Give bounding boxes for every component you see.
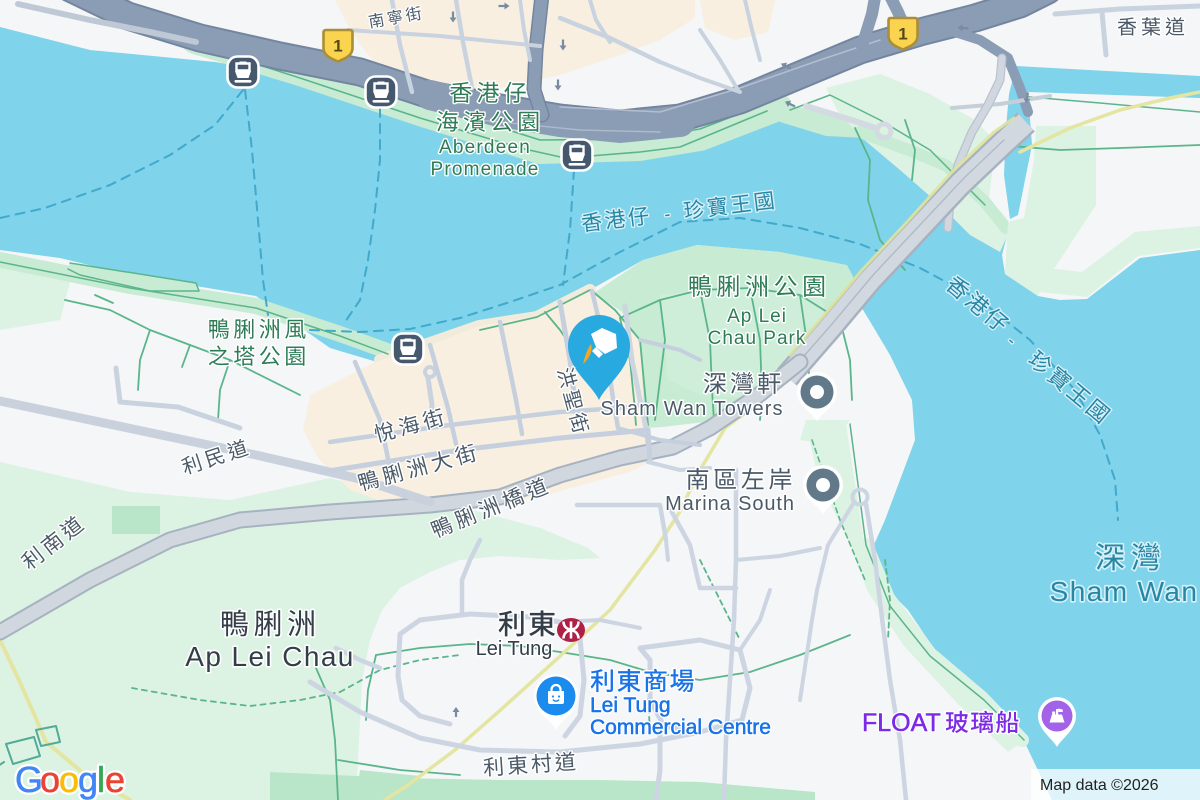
svg-text:g: g bbox=[78, 759, 98, 800]
svg-text:Sham Wan Towers: Sham Wan Towers bbox=[600, 398, 783, 420]
svg-text:FLOAT: FLOAT bbox=[862, 709, 941, 737]
svg-text:1: 1 bbox=[898, 25, 907, 44]
svg-text:Marina South: Marina South bbox=[665, 493, 795, 515]
svg-text:Aberdeen: Aberdeen bbox=[439, 137, 531, 158]
svg-text:Commercial Centre: Commercial Centre bbox=[590, 716, 771, 739]
svg-text:Promenade: Promenade bbox=[430, 159, 539, 180]
svg-text:Ap Lei: Ap Lei bbox=[727, 306, 787, 327]
svg-text:e: e bbox=[105, 759, 125, 800]
svg-text:G: G bbox=[15, 759, 43, 800]
svg-text:o: o bbox=[59, 759, 79, 800]
svg-text:1: 1 bbox=[333, 37, 342, 56]
svg-text:Ap Lei Chau: Ap Lei Chau bbox=[185, 641, 355, 672]
svg-text:Sham Wan: Sham Wan bbox=[1050, 576, 1199, 607]
svg-text:Map data ©2026: Map data ©2026 bbox=[1040, 777, 1159, 794]
svg-text:Lei Tung: Lei Tung bbox=[476, 638, 553, 660]
svg-text:o: o bbox=[40, 759, 60, 800]
svg-text:Chau Park: Chau Park bbox=[708, 328, 807, 349]
svg-text:Lei Tung: Lei Tung bbox=[590, 694, 671, 717]
svg-text:l: l bbox=[97, 759, 105, 800]
